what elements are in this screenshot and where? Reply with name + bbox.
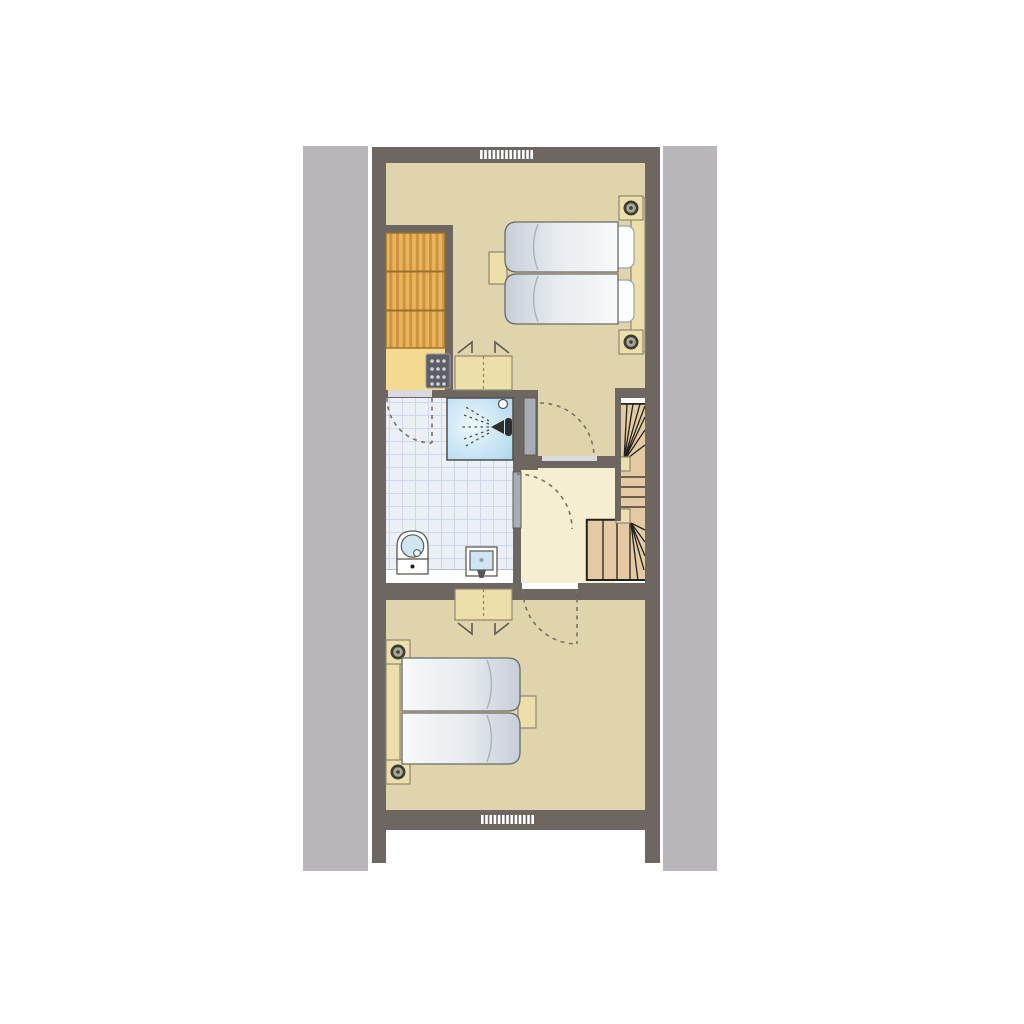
toilet <box>397 531 428 574</box>
threshold-bedroom-bottom-door <box>522 583 578 589</box>
wall-south-of-landing <box>372 583 660 600</box>
bedpost <box>619 330 643 354</box>
floor-plan-canvas <box>0 0 1024 1024</box>
floor-plan-image <box>0 0 1024 1024</box>
bedpost <box>619 196 643 220</box>
washbasin <box>466 547 497 578</box>
mattress <box>402 713 520 764</box>
wardrobe <box>386 233 445 348</box>
wall-closet-top <box>372 225 453 233</box>
threshold-closet-door <box>388 390 432 397</box>
headboard <box>631 198 645 352</box>
shower <box>447 398 513 460</box>
door-leaf-bathroom <box>513 472 521 528</box>
facade-band-right <box>663 146 717 871</box>
wall-exterior-left <box>372 147 386 863</box>
mattress <box>505 222 618 272</box>
door-leaf-bedroom-top <box>524 398 536 455</box>
heater-unit <box>426 354 450 388</box>
nightstand <box>489 252 507 284</box>
mattress <box>402 658 520 711</box>
shower-valve <box>499 400 508 409</box>
threshold-bedroom-top-door <box>542 456 597 461</box>
bedroom-top-vestibule-floor <box>538 398 615 456</box>
stairs-lower-winder <box>586 519 645 581</box>
threshold-stairs <box>621 398 645 403</box>
mattress <box>505 274 618 324</box>
wall-stairs-top <box>615 388 645 398</box>
nightstand <box>518 696 536 728</box>
facade-band-left <box>303 146 368 871</box>
wall-exterior-right <box>645 147 660 863</box>
stairs-stringer <box>615 398 621 521</box>
